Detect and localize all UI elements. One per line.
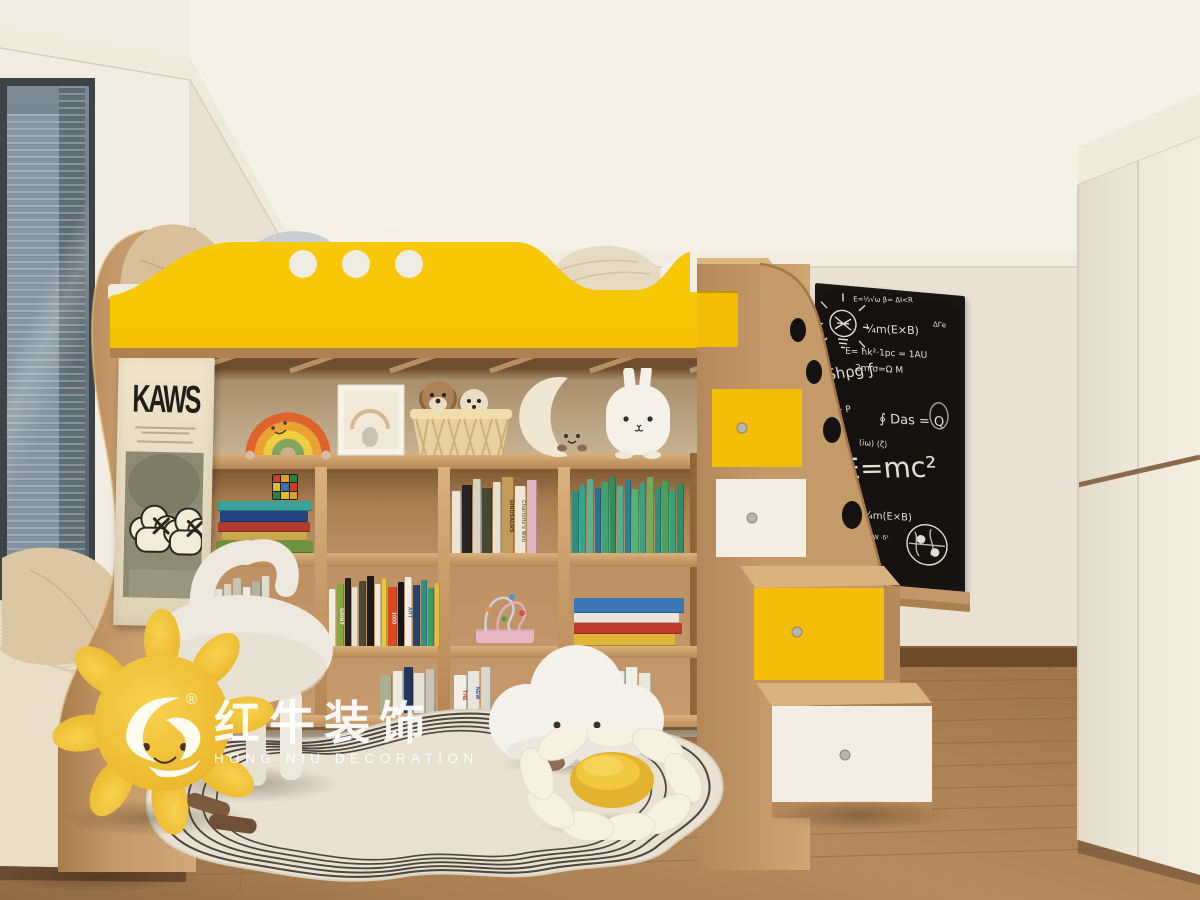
- kids-bedroom-render: E=½√ω β= ΔI<RΔΓe¼m(E×B)E= ħk²·1pc = 1AU2…: [0, 0, 1200, 900]
- book-spine: DINOSAURS: [502, 477, 514, 553]
- book-spine: [602, 482, 609, 553]
- registered-mark: ®: [186, 691, 197, 708]
- book-spine: [452, 491, 461, 553]
- book-spine: [493, 482, 501, 553]
- book-spine: [595, 488, 601, 553]
- book-spine: [670, 490, 676, 553]
- book-spine: [677, 484, 684, 553]
- book-spine: ART: [405, 577, 412, 646]
- built-in-wardrobe: [1070, 85, 1200, 885]
- book-spine: [580, 485, 586, 553]
- stacked-book: [217, 501, 312, 511]
- stacked-book: [574, 598, 684, 613]
- book-spine: [462, 485, 472, 553]
- loft-bed-guardrail: [90, 200, 752, 362]
- book-spine: [625, 480, 631, 553]
- plush-boot: [185, 791, 231, 819]
- moon-plush: [519, 377, 587, 457]
- book-spine: [482, 488, 492, 553]
- bunny-plush: [606, 368, 670, 459]
- step-surface: [740, 566, 900, 588]
- book-spine: [398, 582, 405, 646]
- book-spine: [345, 578, 352, 646]
- book-spine: 1000: [388, 587, 396, 646]
- daisy-pillow: [515, 728, 705, 840]
- book-series: [572, 469, 688, 553]
- stacked-book: [220, 511, 308, 522]
- big-yellow-drawer: [754, 588, 884, 680]
- book-spine: [375, 584, 382, 646]
- book-spine: [655, 487, 661, 553]
- watermark-cn: 红牛装饰: [214, 698, 479, 749]
- book-spine: [359, 581, 366, 646]
- book-spine: [413, 585, 420, 646]
- book-spine: [382, 579, 387, 646]
- top-yellow-drawer: [697, 292, 738, 347]
- book-spine: [473, 479, 481, 553]
- book-spine: [435, 583, 440, 646]
- book-spine: [421, 580, 427, 646]
- book-row: DINOSAURSCharlotte's Web: [452, 469, 558, 553]
- bottom-white-drawer: [772, 706, 932, 802]
- step-surface: [756, 683, 932, 706]
- book-spine: [352, 587, 358, 646]
- stacked-book: [218, 522, 310, 532]
- book-spine: [647, 477, 654, 553]
- book-spine: [640, 483, 646, 553]
- plush-boot: [208, 813, 258, 835]
- watermark: ® 红牛装饰 HONG NIU DECORATION: [118, 686, 479, 778]
- wardrobe-doors: [1078, 137, 1200, 875]
- woven-basket-with-puppies: [410, 381, 512, 455]
- hongniu-bull-logo: ®: [118, 686, 206, 778]
- book-spine: [527, 480, 537, 553]
- book-spine: [367, 576, 374, 646]
- book-spine: [632, 489, 639, 553]
- book-spine: [572, 491, 579, 553]
- book-spine: [428, 588, 435, 646]
- book-spine: [662, 481, 669, 553]
- rainbow-plush: [246, 417, 331, 460]
- puppy-plush: [419, 381, 457, 413]
- display-toys: [196, 368, 742, 462]
- bed-platform-edge: [110, 348, 697, 358]
- book-row: GRINT1000ART: [329, 569, 440, 646]
- book-spine: [610, 477, 616, 553]
- book-spine: [587, 479, 594, 553]
- book-spine: [617, 486, 624, 553]
- rubiks-cube: [272, 474, 298, 500]
- stacked-book: [574, 613, 679, 623]
- yellow-drawer: [712, 389, 802, 467]
- book-spine: Charlotte's Web: [515, 486, 526, 553]
- photo-frame: [338, 385, 404, 455]
- white-drawer: [716, 479, 806, 557]
- watermark-en: HONG NIU DECORATION: [214, 751, 479, 766]
